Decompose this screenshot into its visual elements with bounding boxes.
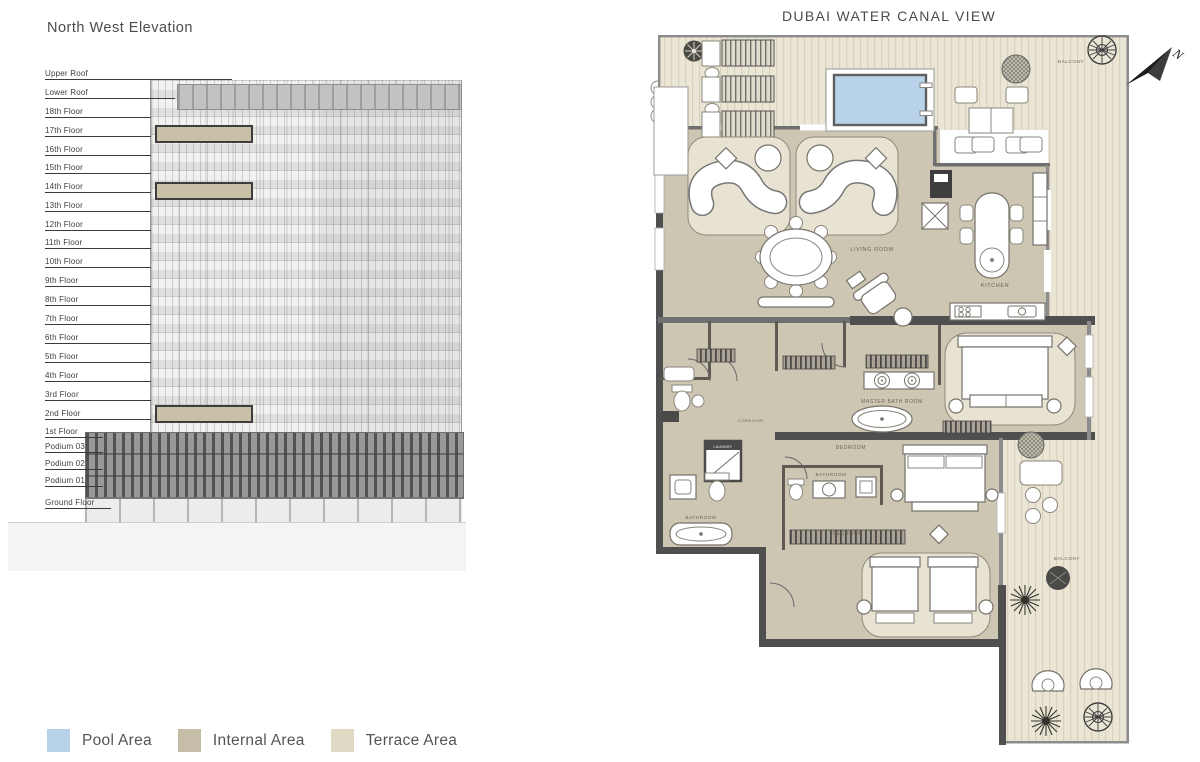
floor-label-row: Podium 03: [45, 440, 103, 453]
podium-facade: [85, 432, 464, 499]
legend-label: Pool Area: [82, 732, 152, 750]
balcony-label: BALCONY: [1058, 59, 1084, 64]
side-table: [1047, 399, 1061, 413]
elevation-title: North West Elevation: [47, 20, 193, 36]
toilet: [788, 479, 804, 500]
floor-label-row: 3rd Floor: [45, 388, 151, 401]
bedroom-label: BEDROOM: [833, 531, 863, 537]
floor-label-row: 11th Floor: [45, 236, 151, 249]
plant-icon: [684, 41, 705, 62]
floor-label-row: Ground Floor: [45, 496, 111, 509]
wardrobe: [866, 355, 928, 368]
basin: [664, 367, 694, 381]
floor-label-row: 17th Floor: [45, 124, 151, 137]
headboard: [903, 445, 987, 454]
floor-label-row: 12th Floor: [45, 218, 151, 231]
vanity: [813, 481, 845, 498]
side-table: [986, 489, 998, 501]
planter: [654, 87, 688, 175]
pool-water: [834, 75, 926, 125]
legend-item-pool: Pool Area: [47, 729, 152, 752]
headboard: [870, 557, 920, 567]
floor-label-row: 13th Floor: [45, 199, 151, 212]
floor-plan-drawing: BALCONY N: [650, 25, 1185, 750]
coffee-table: [755, 145, 781, 171]
highlight-unit-2nd-floor: [155, 405, 253, 423]
highlight-unit-17th-floor: [155, 125, 253, 143]
floor-label-row: Upper Roof: [45, 67, 232, 80]
floor-label-row: Podium 02: [45, 457, 103, 470]
floor-label-row: 2nd Floor: [45, 407, 151, 420]
floor-label-row: 5th Floor: [45, 350, 151, 363]
floor-label-row: 9th Floor: [45, 274, 151, 287]
legend-label: Internal Area: [213, 732, 305, 750]
wardrobe: [943, 421, 991, 433]
bathroom-label: BATHROOM: [815, 472, 846, 477]
closet: [697, 349, 735, 362]
corridor-label: CORRIDOR: [738, 419, 763, 423]
bedroom-label: BEDROOM: [836, 445, 866, 451]
small-sink: [692, 395, 704, 407]
floor-label-row: 6th Floor: [45, 331, 151, 344]
floor-label-row: 1st Floor: [45, 425, 103, 438]
kitchen-counter: [950, 303, 1045, 320]
legend: Pool Area Internal Area Terrace Area: [47, 729, 457, 752]
tall-cabinets: [1033, 173, 1047, 245]
internal-area-swatch: [178, 729, 201, 752]
deck-chair: [972, 137, 994, 152]
bed: [872, 567, 918, 611]
floor-plan-title: DUBAI WATER CANAL VIEW: [650, 8, 1128, 24]
floor-label-row: Lower Roof: [45, 86, 175, 99]
side-table: [891, 489, 903, 501]
plant-icon: [1031, 706, 1061, 736]
floor-plan: BALCONY N: [650, 25, 1185, 750]
legend-item-terrace: Terrace Area: [331, 729, 457, 752]
side-table: [979, 600, 993, 614]
highlight-unit-14th-floor: [155, 182, 253, 200]
master-bathroom-label: MASTER BATH ROOM: [861, 399, 923, 405]
floor-label-row: 4th Floor: [45, 369, 151, 382]
master-bedroom: [943, 333, 1076, 433]
pool-area-swatch: [47, 729, 70, 752]
wardrobe: [783, 356, 835, 369]
elevation-panel: North West Elevation Upper Roof Lower Ro…: [0, 0, 560, 762]
floor-label-row: 7th Floor: [45, 312, 151, 325]
bed: [930, 567, 976, 611]
round-table: [1002, 55, 1030, 83]
ground-floor-glazing: [85, 497, 462, 524]
bed: [962, 347, 1048, 399]
round-table: [1018, 432, 1044, 458]
page: { "elevation": { "title": "North West El…: [0, 0, 1200, 762]
north-arrow: N: [1126, 45, 1185, 85]
floor-label-row: 10th Floor: [45, 255, 151, 268]
shaft-box: [661, 411, 679, 422]
plant-icon: [1084, 703, 1112, 731]
side-table: [857, 600, 871, 614]
roof-band: [177, 84, 462, 110]
terrace-area-swatch: [331, 729, 354, 752]
kitchen-label: KITCHEN: [981, 283, 1009, 289]
plant-icon: [1088, 36, 1116, 64]
laundry-label: LAUNDRY: [714, 445, 733, 449]
side-table: [949, 399, 963, 413]
dining-table: [756, 217, 837, 298]
vanity: [670, 475, 696, 499]
bathtub: [670, 523, 732, 545]
deck-chair: [1020, 137, 1042, 152]
plant-icon: [1010, 585, 1040, 615]
bed-bench: [912, 502, 978, 511]
balcony-label: BALCONY: [1054, 556, 1080, 561]
ground-plane: [8, 522, 466, 571]
bathtub: [852, 406, 912, 432]
pool: [826, 69, 934, 131]
console-bench: [758, 297, 834, 307]
legend-item-internal: Internal Area: [178, 729, 305, 752]
ottoman: [894, 308, 912, 326]
living-room-label: LIVING ROOM: [850, 247, 893, 253]
headboard: [928, 557, 978, 567]
coffee-table: [807, 145, 833, 171]
floor-label-row: 8th Floor: [45, 293, 151, 306]
floor-label-row: 14th Floor: [45, 180, 151, 193]
floor-label-row: 15th Floor: [45, 161, 151, 174]
shower: [856, 477, 876, 497]
bathroom-label: BATHROOM: [685, 515, 716, 520]
legend-label: Terrace Area: [366, 732, 457, 750]
pool-ladder: [920, 83, 932, 88]
floor-label-row: Podium 01: [45, 474, 103, 487]
sun-loungers: [702, 40, 774, 137]
floor-label-row: 18th Floor: [45, 105, 151, 118]
floor-label-row: 16th Floor: [45, 143, 151, 156]
headboard: [958, 336, 1052, 347]
